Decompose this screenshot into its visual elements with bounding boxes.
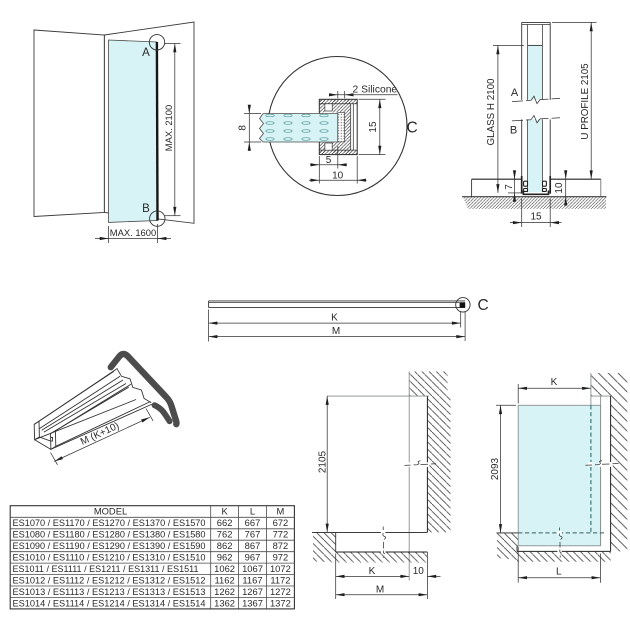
svg-text:872: 872 — [273, 540, 289, 551]
svg-text:MODEL: MODEL — [94, 506, 127, 517]
svg-text:2093: 2093 — [490, 457, 501, 480]
svg-text:1072: 1072 — [270, 563, 291, 574]
svg-text:10: 10 — [332, 170, 344, 181]
svg-text:GLASS H 2100: GLASS H 2100 — [486, 78, 497, 146]
svg-text:10: 10 — [554, 182, 565, 194]
svg-text:15: 15 — [368, 121, 379, 133]
svg-text:1372: 1372 — [270, 597, 291, 608]
svg-text:767: 767 — [245, 529, 261, 540]
svg-text:1362: 1362 — [214, 597, 235, 608]
svg-text:C: C — [407, 120, 418, 137]
svg-text:662: 662 — [217, 517, 233, 528]
svg-text:L: L — [250, 506, 255, 517]
svg-text:1267: 1267 — [242, 586, 263, 597]
svg-text:672: 672 — [273, 517, 289, 528]
svg-text:B: B — [510, 125, 517, 137]
svg-text:A: A — [142, 47, 150, 59]
svg-text:7: 7 — [504, 184, 515, 190]
svg-text:2 Silicone: 2 Silicone — [353, 85, 398, 96]
svg-text:867: 867 — [245, 540, 261, 551]
svg-text:K: K — [369, 566, 376, 577]
svg-text:1067: 1067 — [242, 563, 263, 574]
svg-text:1162: 1162 — [215, 574, 235, 585]
svg-text:1272: 1272 — [270, 586, 291, 597]
svg-text:762: 762 — [217, 529, 233, 540]
svg-text:962: 962 — [217, 552, 233, 563]
svg-text:ES1090 / ES1190 / ES1290 / ES1: ES1090 / ES1190 / ES1290 / ES1390 / ES15… — [13, 540, 206, 551]
svg-text:M: M — [276, 506, 284, 517]
svg-text:M: M — [376, 585, 384, 596]
svg-text:U PROFILE 2105: U PROFILE 2105 — [580, 63, 591, 140]
svg-text:1262: 1262 — [214, 586, 235, 597]
svg-text:ES1011 / ES1111 / ES1211 / ES1: ES1011 / ES1111 / ES1211 / ES1311 / ES15… — [13, 563, 199, 574]
svg-text:972: 972 — [273, 552, 289, 563]
svg-text:ES1010 / ES1110 / ES1210 / ES1: ES1010 / ES1110 / ES1210 / ES1310 / ES15… — [13, 552, 206, 563]
svg-text:1367: 1367 — [242, 597, 263, 608]
svg-text:ES1014 / ES1114 / ES1214 / ES1: ES1014 / ES1114 / ES1214 / ES1314 / ES15… — [13, 597, 206, 608]
svg-text:772: 772 — [273, 529, 289, 540]
svg-text:1167: 1167 — [242, 574, 262, 585]
svg-text:MAX. 2100: MAX. 2100 — [163, 105, 174, 151]
svg-text:667: 667 — [245, 517, 261, 528]
svg-text:862: 862 — [217, 540, 233, 551]
svg-text:MAX. 1600: MAX. 1600 — [110, 227, 156, 238]
svg-text:K: K — [551, 377, 558, 388]
svg-text:967: 967 — [245, 552, 261, 563]
svg-text:10: 10 — [413, 566, 425, 577]
svg-text:K: K — [331, 312, 338, 323]
svg-text:C: C — [478, 297, 489, 314]
svg-text:5: 5 — [326, 155, 332, 166]
svg-text:ES1013 / ES1113 / ES1213 / ES1: ES1013 / ES1113 / ES1213 / ES1313 / ES15… — [13, 586, 206, 597]
svg-text:15: 15 — [530, 212, 542, 223]
svg-text:ES1080 / ES1180 / ES1280 / ES1: ES1080 / ES1180 / ES1280 / ES1380 / ES15… — [13, 529, 206, 540]
svg-text:M: M — [332, 326, 340, 337]
svg-text:1172: 1172 — [270, 574, 290, 585]
svg-text:A: A — [511, 87, 519, 99]
svg-text:K: K — [221, 506, 228, 517]
svg-text:ES1070 / ES1170 / ES1270 / ES1: ES1070 / ES1170 / ES1270 / ES1370 / ES15… — [13, 517, 206, 528]
svg-text:ES1012 / ES1112 / ES1212 / ES1: ES1012 / ES1112 / ES1212 / ES1312 / ES15… — [13, 574, 206, 585]
svg-text:B: B — [142, 203, 150, 215]
svg-text:8: 8 — [238, 125, 249, 131]
svg-text:1062: 1062 — [214, 563, 235, 574]
svg-text:2105: 2105 — [318, 450, 329, 473]
svg-text:L: L — [556, 567, 562, 578]
